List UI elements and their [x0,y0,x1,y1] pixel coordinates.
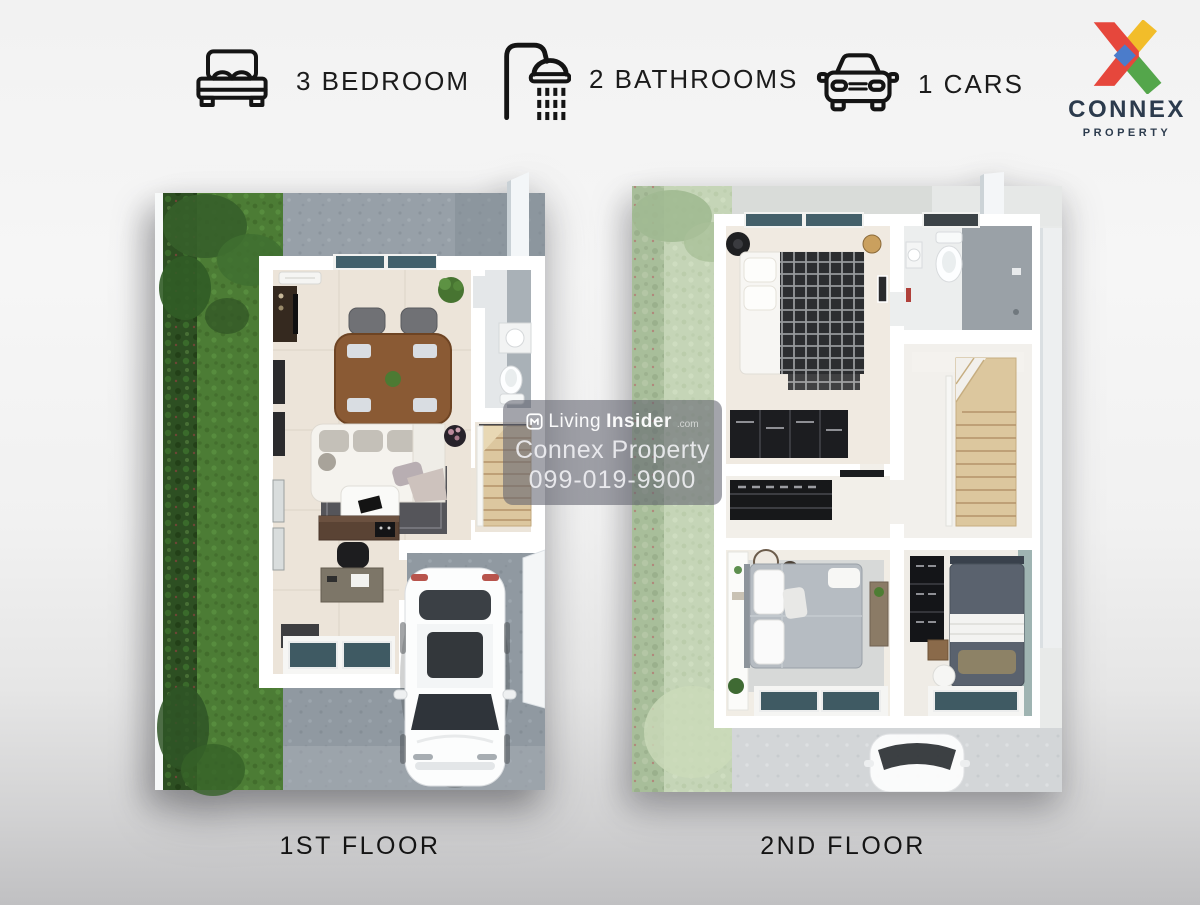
fp2-bed3 [950,556,1024,686]
watermark-site-light: Living [548,411,601,433]
fp1-desk-chair [337,542,369,568]
fp1-car [394,568,516,788]
fp2-wall-shelf [840,470,884,477]
fp2-stair-door-gap [890,480,904,524]
connex-logo-tagline: PROPERTY [1066,127,1188,139]
feature-cars-label: 1 CARS [918,69,1024,100]
first-floor-render [155,168,545,798]
watermark: LivingInsider.com Connex Property 099-01… [503,400,722,505]
feature-bathrooms: 2 BATHROOMS [497,36,798,122]
watermark-site-suffix: .com [677,419,699,430]
fp1-wall-panel [507,172,529,263]
second-floor-label: 2ND FLOOR [733,832,953,861]
fp1-tv-cabinet [273,286,298,342]
feature-bedrooms: 3 BEDROOM [192,48,470,114]
feature-bathrooms-label: 2 BATHROOMS [589,64,798,95]
fp1-carport-fence [523,550,545,708]
connex-logo-name: CONNEX [1066,96,1188,124]
floorplan-flyer: 3 BEDROOM 2 BATHROOMS 1 CA [0,0,1200,905]
fp1-side-table [444,425,466,447]
connex-x-icon [1090,20,1164,94]
watermark-site-bold: Insider [606,411,672,433]
fp1-desk [321,568,383,602]
fp2-bed2 [744,564,862,668]
feature-bedrooms-label: 3 BEDROOM [296,66,470,97]
watermark-site-row: LivingInsider.com [526,411,698,433]
first-floor-label: 1ST FLOOR [250,832,470,861]
fp1-kitchen-counter [319,516,399,540]
bed-icon [192,48,272,114]
fp2-plant [728,678,744,694]
car-icon [816,50,900,119]
fp2-clothes-rack [910,556,944,642]
fp2-right-fence [1040,228,1062,648]
fp1-plant [438,277,464,303]
livinginsider-icon [526,413,543,430]
fp1-bottom-windows [283,636,395,674]
fp2-drain [1013,309,1019,315]
feature-cars: 1 CARS [816,50,1024,119]
fp2-bath-door-gap [890,292,904,326]
fp2-bed1 [740,252,864,390]
fp2-railing [946,376,952,526]
fp1-bath-door-gap [473,276,487,308]
fp2-toilet [936,232,962,282]
connex-logo: CONNEX PROPERTY [1066,20,1188,139]
fp2-shower-valve [906,288,911,302]
fp2-white-stool [933,665,955,687]
shower-icon [497,36,571,122]
fp1-top-windows [333,254,437,270]
fp2-wardrobe [730,410,848,458]
fp2-lamp [863,235,881,253]
fp1-ac-unit [279,272,321,284]
fp2-bedroom2 [728,550,888,716]
watermark-company: Connex Property [515,436,710,465]
watermark-phone: 099-019-9900 [529,466,697,495]
fp2-crate [928,640,948,660]
floorplan-first-floor [155,168,545,798]
fp2-frame [878,276,887,302]
fp2-car-below [864,734,970,792]
